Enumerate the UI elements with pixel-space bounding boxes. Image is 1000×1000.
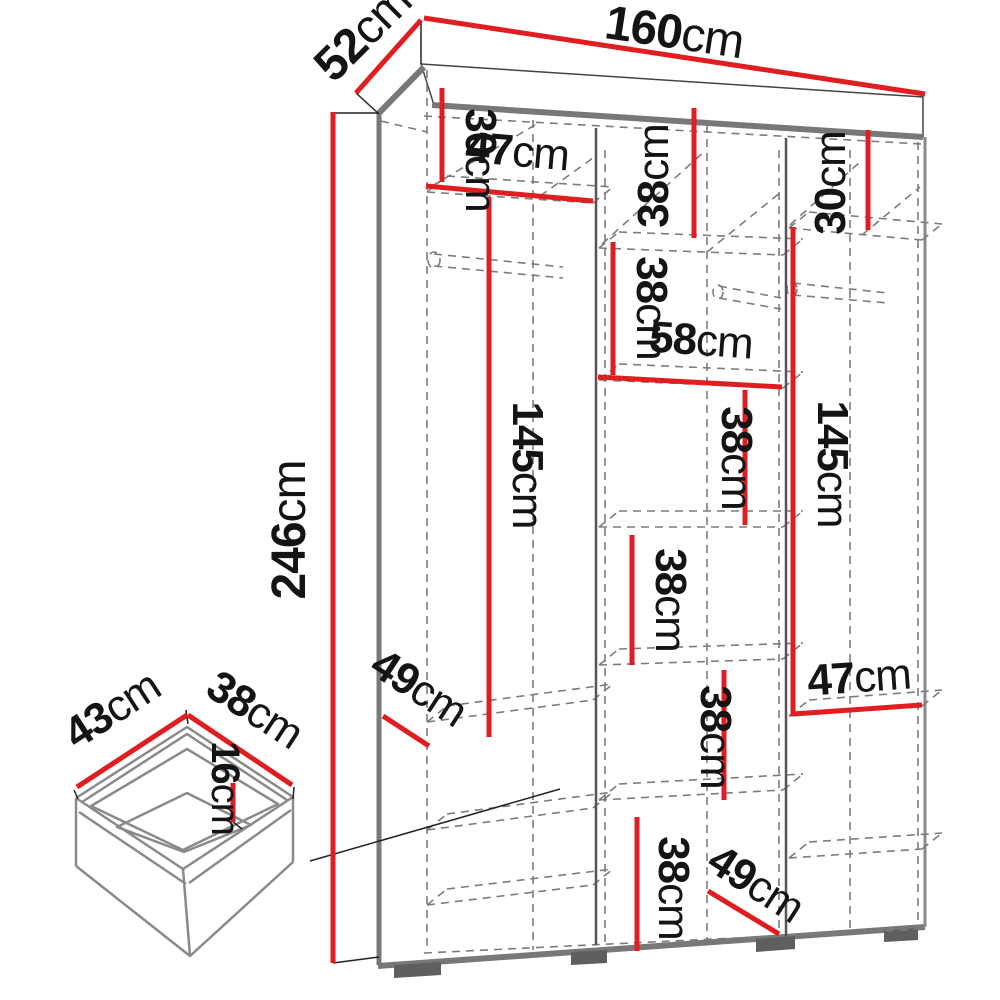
dim-right-hanging-height-label: 145cm [808,400,857,527]
side-panel-depth-line [381,121,427,132]
dim-drawer-height-label: 16cm [203,741,247,835]
diagram-svg: 160cm 52cm 246cm 30cm 47cm 38cm 30cm 38c… [0,0,1000,1000]
drawer-pointer-line [310,789,560,861]
shelf [427,869,613,905]
shelf [599,511,803,527]
shelf [789,833,942,858]
height-extension-bottom [333,957,379,963]
wardrobe-diagram: 160cm 52cm 246cm 30cm 47cm 38cm 30cm 38c… [0,0,1000,1000]
foot [571,950,607,965]
dim-left-hanging-height-label: 145cm [503,401,552,528]
shelf [427,792,613,830]
hanging-rail-left [428,252,563,278]
depth-extension [356,93,379,114]
dim-bottom-middle-height-label: 38cm [649,836,698,940]
dim-right-shelf-width-label: 47cm [806,649,913,705]
dim-top-middle-height-label: 38cm [629,124,678,228]
dim-drawer-width-label: 43cm [55,661,169,759]
partitions [596,128,786,945]
dim-overall-height-label: 246cm [263,460,316,599]
dim-overall-depth-label: 52cm [304,0,422,92]
dim-mid-center-height-label: 38cm [712,406,761,510]
dim-overall-width-label: 160cm [602,0,747,69]
drawer-tick [293,787,294,799]
dim-middle-shelf-width-label: 58cm [648,312,755,368]
dim-middle-shelf-width-line [598,377,782,387]
dim-left-shelf-width-label: 47cm [464,123,571,181]
hanging-rail-middle [713,285,781,309]
dim-top-right-height-label: 30cm [806,131,855,235]
dim-lower-middle-height-label: 38cm [691,685,740,789]
dimension-labels: 160cm 52cm 246cm 30cm 47cm 38cm 30cm 38c… [55,0,912,940]
dim-left-shelf-depth-line [383,716,429,746]
shelf [599,232,803,255]
dim-right-shelf-width-line [793,705,922,714]
dim-left-shelf-width-line [426,186,593,201]
drawer-inner-rim [91,749,278,850]
side-top-edge [378,67,424,114]
hanging-rail-right [787,282,888,303]
dim-mid-lower-height-label: 38cm [646,548,695,652]
